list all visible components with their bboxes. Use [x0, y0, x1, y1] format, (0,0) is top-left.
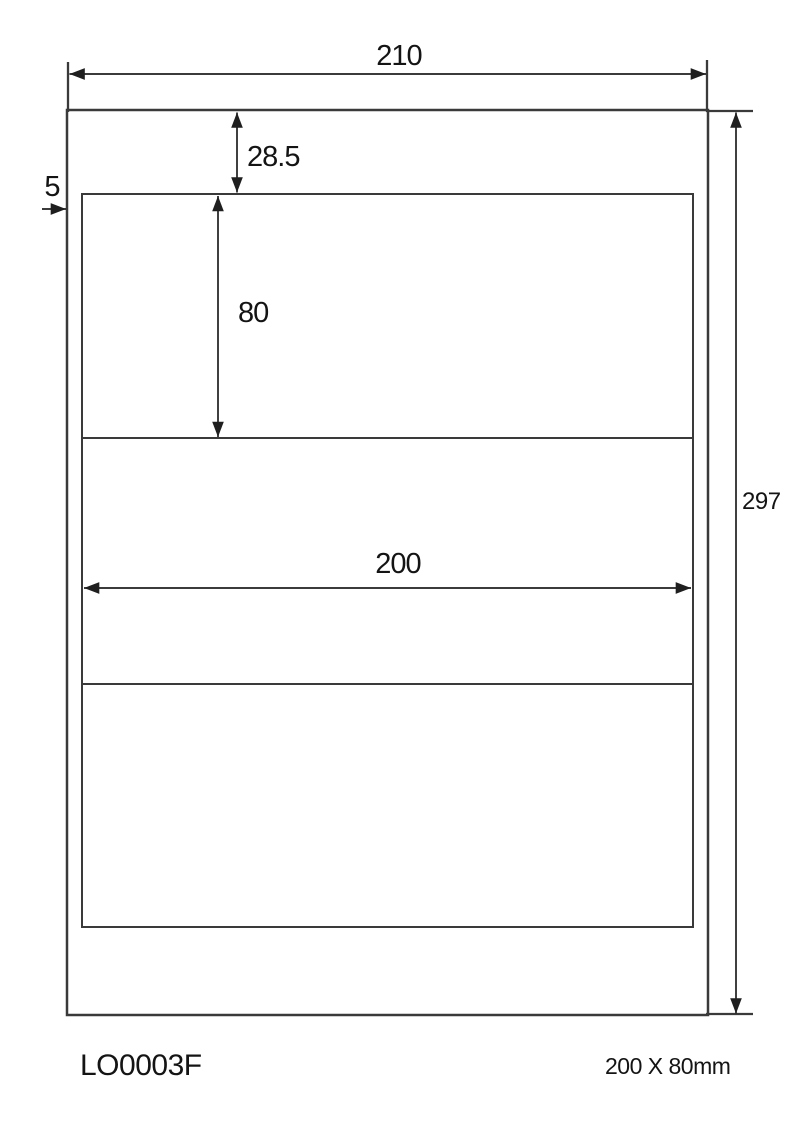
dimension-value-top-margin: 28.5	[247, 141, 299, 173]
product-code-text: LO0003F	[80, 1049, 202, 1082]
label-size-text: 200 X 80mm	[605, 1053, 730, 1079]
label-template-diagram: 210 28.5 80 5 200 297 LO0003F 200 X	[0, 0, 796, 1124]
dimension-value-page-height: 297	[742, 488, 781, 515]
dimension-value-page-width: 210	[376, 40, 421, 72]
dimension-value-label-width: 200	[375, 548, 420, 580]
dimension-value-label-height: 80	[238, 297, 268, 329]
dimension-value-left-margin: 5	[44, 171, 59, 203]
diagram-canvas: 210 28.5 80 5 200 297 LO0003F 200 X	[0, 0, 796, 1124]
